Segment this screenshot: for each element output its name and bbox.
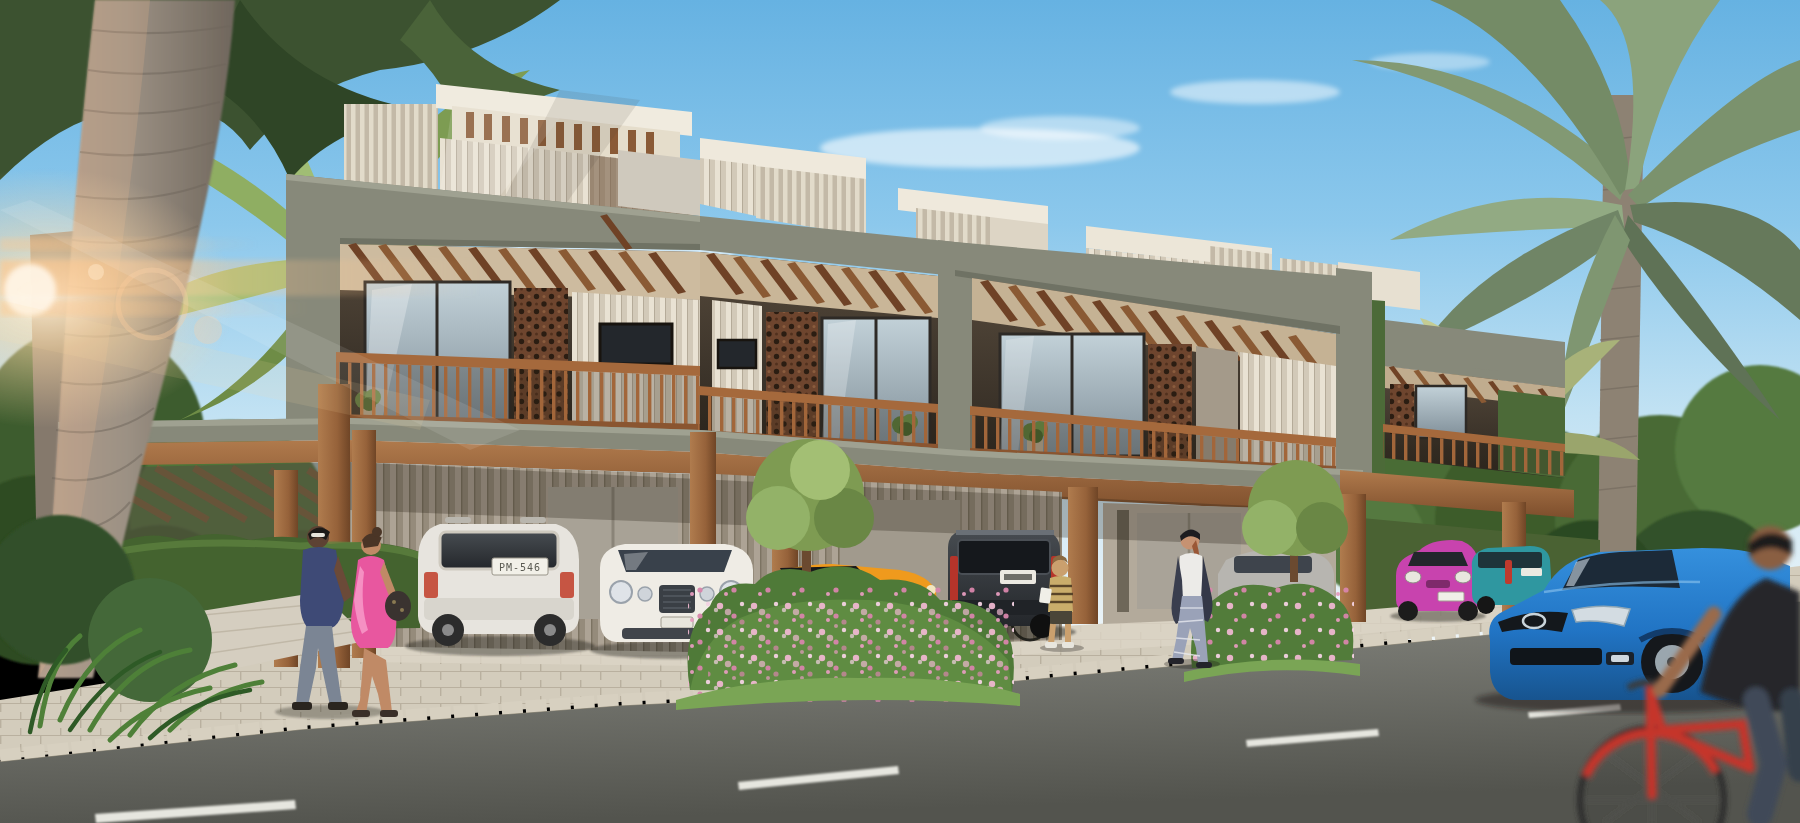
concrete-wall-1 [618, 150, 700, 216]
column-5 [1068, 487, 1098, 624]
mini-windshield [1408, 552, 1468, 566]
handbag [385, 591, 411, 621]
license-plate-text: PM-546 [499, 562, 541, 573]
black-suv-window [958, 540, 1050, 574]
small-window-2 [718, 340, 756, 368]
teal-van-tail [1505, 560, 1512, 584]
small-window-1 [600, 324, 672, 364]
silver-suv-windows [1234, 556, 1312, 573]
stone-pier-3 [1336, 268, 1372, 474]
bentley-headlight [610, 581, 632, 603]
suv-tail-light-left [424, 572, 438, 598]
cyclist-leg [1756, 700, 1774, 814]
architectural-rendering: PM-546 [0, 0, 1800, 823]
suv-tail-light-right [560, 572, 574, 598]
